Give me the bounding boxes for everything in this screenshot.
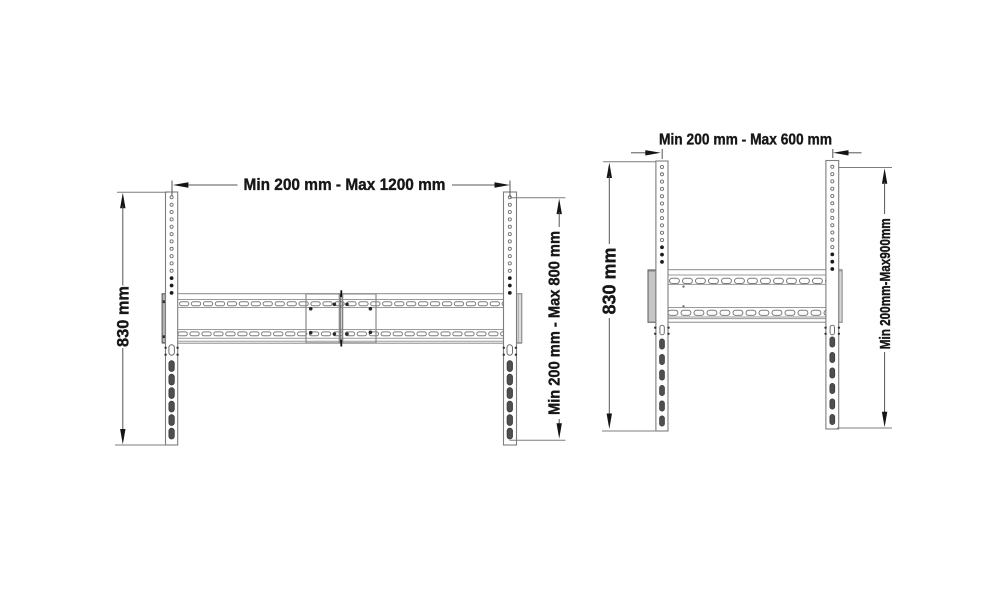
svg-text:Min 200 mm - Max 600 mm: Min 200 mm - Max 600 mm	[659, 132, 832, 149]
svg-text:830 mm: 830 mm	[599, 248, 619, 315]
svg-text:830 mm: 830 mm	[114, 286, 133, 347]
svg-text:Min 200 mm - Max 1200 mm: Min 200 mm - Max 1200 mm	[244, 176, 446, 194]
svg-text:Min 200 mm - Max 800 mm: Min 200 mm - Max 800 mm	[547, 231, 564, 415]
svg-text:Min 200mm-Max900mm: Min 200mm-Max900mm	[878, 218, 894, 349]
